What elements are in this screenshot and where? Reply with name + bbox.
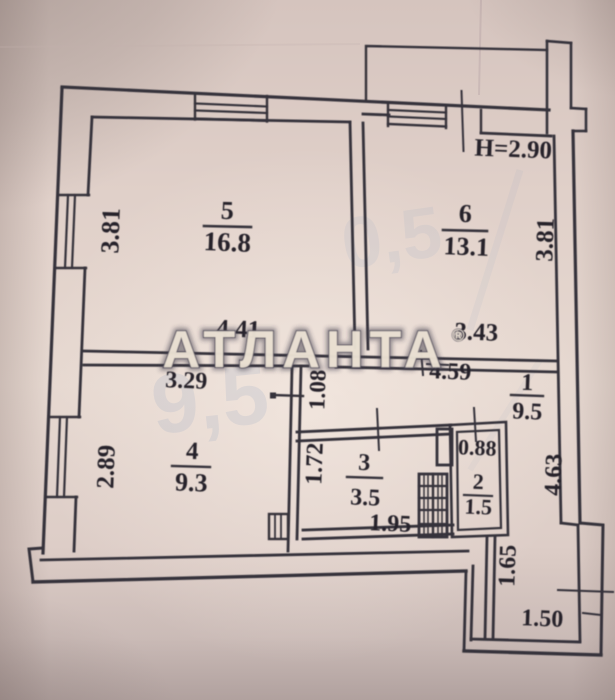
svg-text:5: 5 [220, 196, 234, 225]
svg-text:2.89: 2.89 [92, 444, 121, 489]
svg-text:2: 2 [472, 469, 484, 494]
svg-text:6: 6 [458, 199, 472, 228]
svg-text:4: 4 [186, 438, 200, 465]
svg-text:1: 1 [521, 370, 534, 396]
svg-text:1.5: 1.5 [464, 493, 492, 519]
svg-text:Н=2.90: Н=2.90 [474, 134, 552, 164]
svg-text:1.95: 1.95 [369, 510, 412, 538]
svg-text:0.88: 0.88 [458, 434, 497, 461]
svg-text:9.5: 9.5 [512, 398, 543, 425]
svg-text:9.3: 9.3 [175, 467, 209, 497]
svg-text:13.1: 13.1 [443, 231, 490, 262]
svg-text:3.81: 3.81 [531, 217, 560, 262]
svg-text:16.8: 16.8 [203, 226, 251, 258]
svg-text:4.63: 4.63 [540, 453, 567, 496]
svg-text:АТЛАНТА: АТЛАНТА [162, 321, 447, 379]
svg-text:3.5: 3.5 [350, 484, 381, 511]
svg-text:3.81: 3.81 [95, 207, 126, 253]
svg-text:1.72: 1.72 [301, 442, 328, 485]
svg-text:3: 3 [358, 450, 371, 476]
svg-text:®: ® [452, 326, 465, 345]
svg-text:1.50: 1.50 [521, 605, 564, 633]
svg-text:1.65: 1.65 [494, 544, 521, 587]
